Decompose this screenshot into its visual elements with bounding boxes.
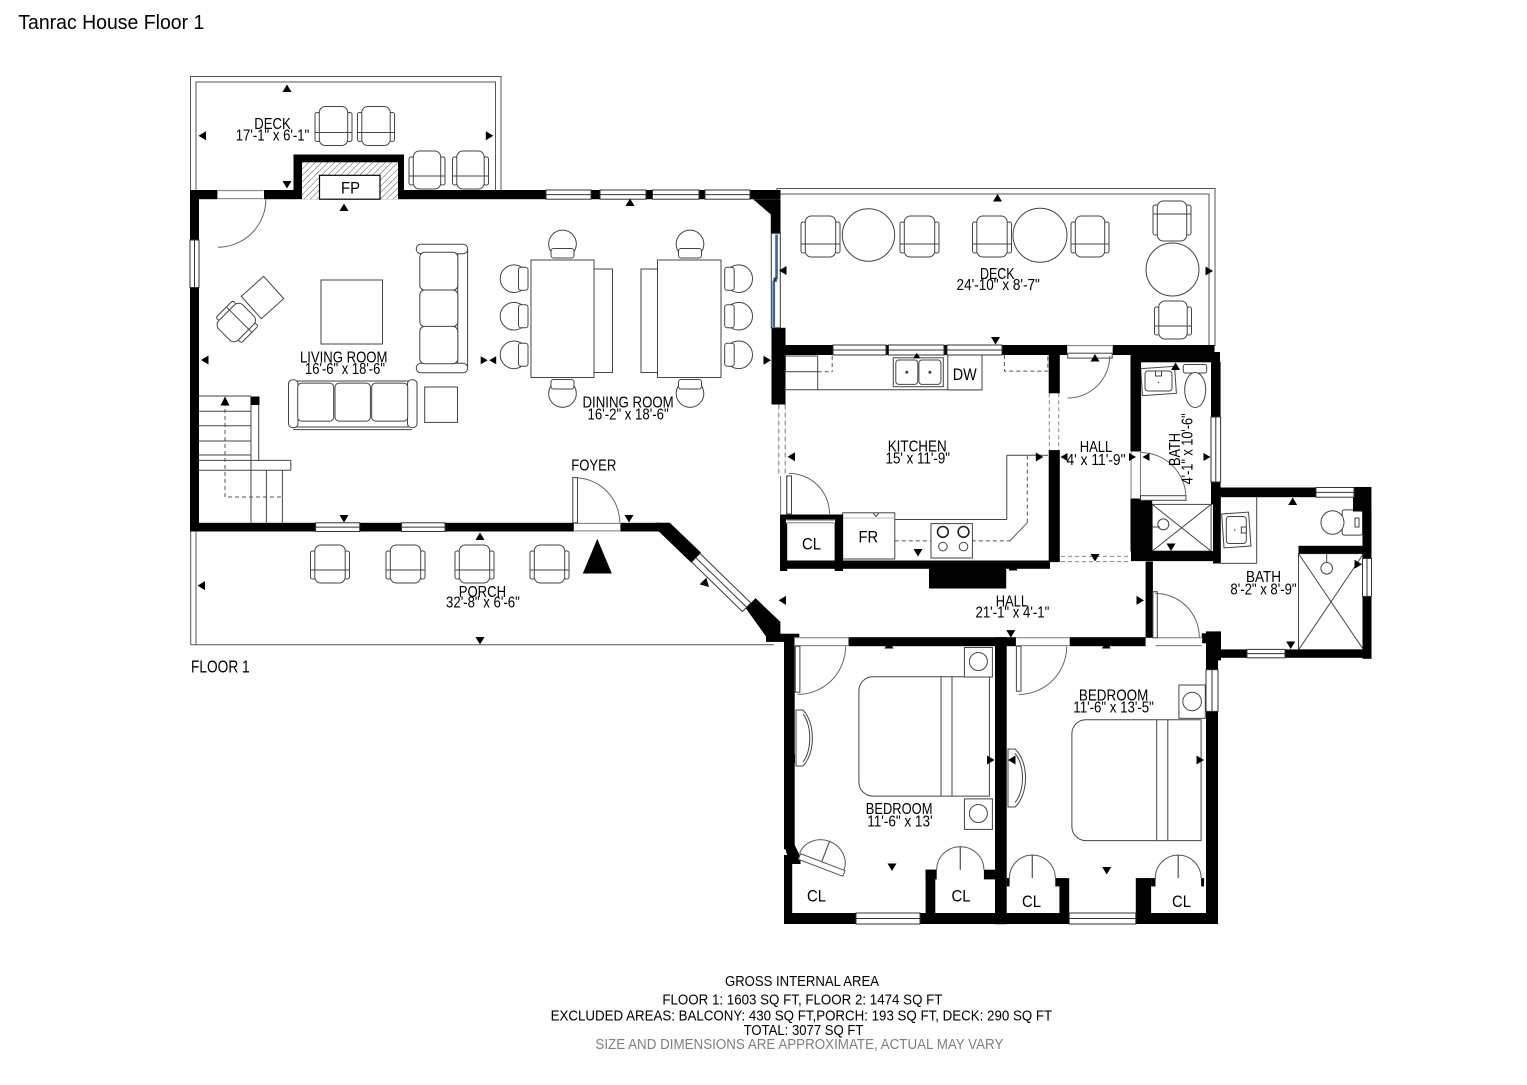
svg-text:8'-2" x 8'-9": 8'-2" x 8'-9" [1230, 581, 1296, 598]
svg-text:SIZE AND DIMENSIONS ARE APPROX: SIZE AND DIMENSIONS ARE APPROXIMATE, ACT… [595, 1036, 1003, 1053]
svg-text:GROSS INTERNAL AREA: GROSS INTERNAL AREA [725, 973, 879, 990]
svg-text:FLOOR 1: FLOOR 1 [191, 657, 250, 677]
svg-text:FP: FP [341, 178, 360, 197]
svg-text:17'-1" x 6'-1": 17'-1" x 6'-1" [236, 127, 310, 144]
svg-text:4' x 11'-9": 4' x 11'-9" [1067, 452, 1126, 469]
svg-text:CL: CL [952, 887, 971, 906]
svg-text:16'-6" x 18'-6": 16'-6" x 18'-6" [305, 361, 385, 378]
svg-text:16'-2" x 18'-6": 16'-2" x 18'-6" [588, 407, 669, 424]
svg-text:4'-1" x 10'-6": 4'-1" x 10'-6" [1180, 413, 1197, 484]
svg-text:11'-6" x 13': 11'-6" x 13' [867, 814, 932, 831]
svg-text:CL: CL [807, 887, 826, 906]
svg-text:CL: CL [802, 535, 821, 554]
svg-text:FLOOR 1: 1603 SQ FT, FLOOR 2:: FLOOR 1: 1603 SQ FT, FLOOR 2: 1474 SQ FT [662, 991, 942, 1008]
svg-text:24'-10" x 8'-7": 24'-10" x 8'-7" [957, 277, 1040, 294]
svg-text:11'-6" x 13'-5": 11'-6" x 13'-5" [1073, 700, 1154, 717]
svg-text:CL: CL [1022, 892, 1041, 911]
svg-text:FOYER: FOYER [571, 458, 616, 475]
svg-text:21'-1" x 4'-1": 21'-1" x 4'-1" [976, 605, 1050, 622]
svg-text:Tanrac House Floor 1: Tanrac House Floor 1 [18, 12, 204, 34]
svg-text:15' x 11'-9": 15' x 11'-9" [886, 451, 951, 468]
svg-text:32'-8" x 6'-6": 32'-8" x 6'-6" [446, 595, 520, 612]
svg-text:DW: DW [953, 365, 977, 384]
svg-text:CL: CL [1172, 892, 1191, 911]
svg-text:FR: FR [858, 528, 878, 547]
